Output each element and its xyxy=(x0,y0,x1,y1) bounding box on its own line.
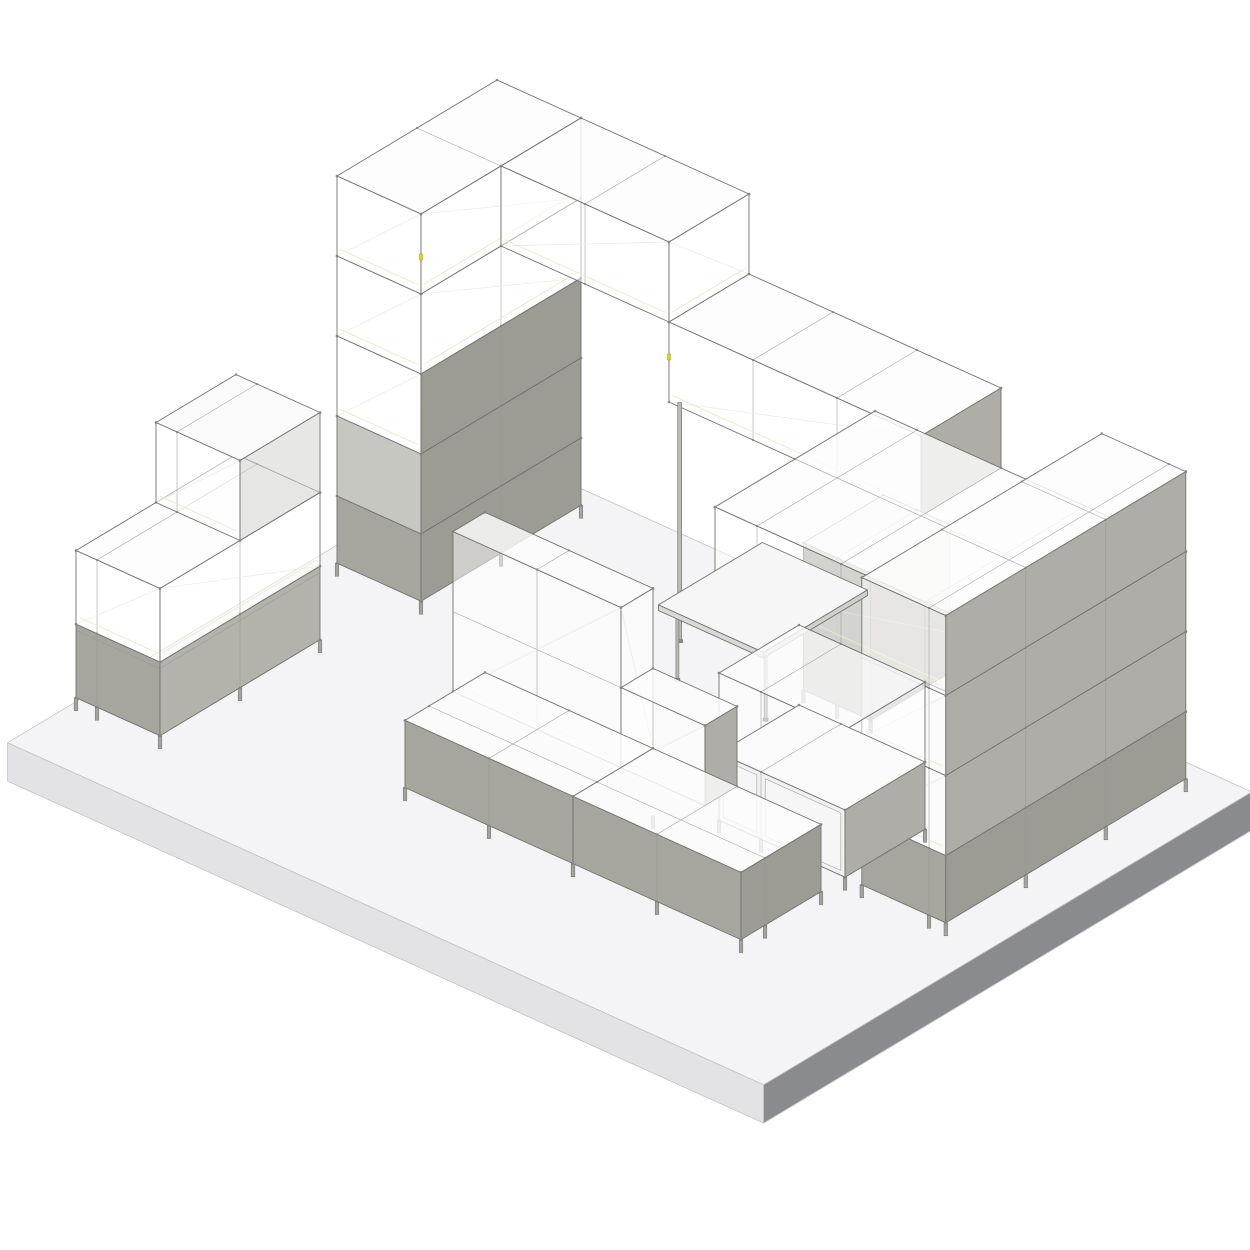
showroom-render-stage: Isometric 3D rendering of a modular shel… xyxy=(0,0,1250,1250)
scene-canvas xyxy=(0,0,1250,1250)
furniture-isometric-render: Isometric 3D rendering of a modular shel… xyxy=(0,0,1250,1250)
